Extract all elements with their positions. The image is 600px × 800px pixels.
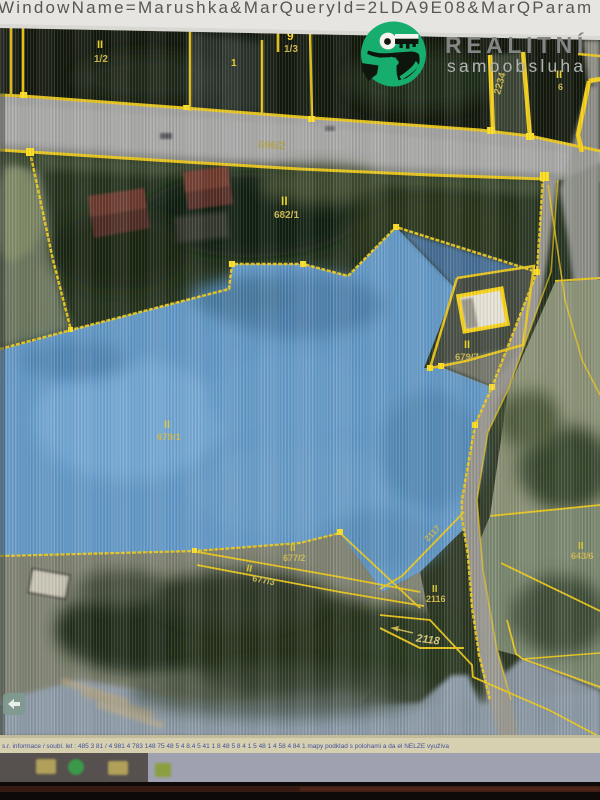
svg-text:REALITNÍ: REALITNÍ <box>445 31 588 58</box>
svg-text:samoobsluha: samoobsluha <box>447 56 586 76</box>
svg-text:s.r. informace / soubl. let :: s.r. informace / soubl. let : 485 3 81 /… <box>2 743 449 750</box>
svg-text:WindowName=Marushka&MarQueryId: WindowName=Marushka&MarQueryId=2LDA9E08&… <box>0 0 593 17</box>
